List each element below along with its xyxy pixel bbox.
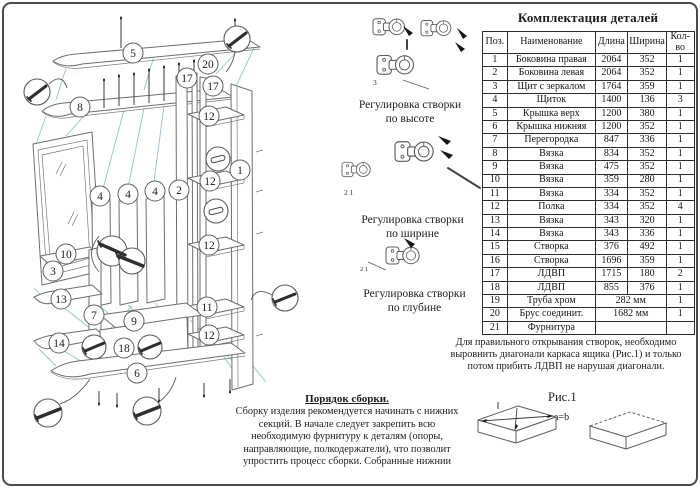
svg-text:14: 14: [53, 338, 65, 350]
hinge-callout-label: 3: [373, 78, 377, 87]
assembly-text: Сборку изделия рекомендуется начинать с …: [232, 406, 462, 469]
furniture-diagram: 58201717121212111212444103137914186: [4, 4, 354, 436]
svg-text:18: 18: [118, 343, 130, 355]
svg-text:5: 5: [130, 48, 136, 60]
callout-12: 12: [199, 235, 219, 255]
callout-4: 4: [90, 186, 110, 206]
hinge-icon: [421, 21, 451, 36]
svg-text:12: 12: [203, 240, 215, 252]
table-row: 19Труба хром282 мм1: [482, 295, 694, 308]
svg-text:10: 10: [60, 249, 72, 261]
table-row: 17ЛДВП17151802: [482, 268, 694, 281]
callout-8: 8: [70, 97, 90, 117]
fig1-block: Рис.1 a=b: [468, 388, 698, 466]
hinge-icon: [395, 142, 433, 162]
parts-table-body: 1Боковина правая206435212Боковина левая2…: [482, 54, 694, 335]
hinge-diagram-height: [345, 12, 475, 93]
parts-title: Комплектация деталей: [480, 10, 696, 26]
hinge-icon: [386, 247, 419, 264]
hinge-icon: [377, 56, 414, 75]
callout-5: 5: [123, 43, 143, 63]
callout-10: 10: [56, 244, 76, 264]
svg-text:1: 1: [237, 165, 243, 177]
callout-17: 17: [203, 76, 223, 96]
parts-table: Поз.НаименованиеДлинаШиринаКол-во 1Боков…: [482, 31, 695, 335]
svg-text:12: 12: [204, 176, 216, 188]
assembly-title: Порядок сборки.: [232, 393, 462, 405]
svg-text:7: 7: [91, 310, 97, 322]
callout-7: 7: [84, 305, 104, 325]
table-row: 12Полка3343524: [482, 201, 694, 214]
callout-12: 12: [199, 106, 219, 126]
svg-text:13: 13: [55, 294, 67, 306]
svg-text:17: 17: [181, 73, 193, 85]
callout-11: 11: [197, 297, 217, 317]
table-row: 9Вязка4753521: [482, 161, 694, 174]
table-row: 8Вязка8343521: [482, 147, 694, 160]
column-header: Кол-во: [666, 32, 694, 54]
table-row: 4Щиток14001363: [482, 94, 694, 107]
parts-list: Комплектация деталей Поз.НаименованиеДли…: [480, 10, 696, 335]
svg-text:6: 6: [134, 368, 140, 380]
hinge-diagram-depth: [352, 238, 477, 282]
adjustment-caption: Регулировка створки по глубине: [352, 287, 477, 316]
fig1-diagram: [468, 400, 698, 462]
table-row: 10Вязка3592801: [482, 174, 694, 187]
table-row: 3Щит с зеркалом17643591: [482, 80, 694, 93]
adjust-group-width: 2 1 Регулировка створки по ширине: [340, 128, 485, 242]
svg-text:8: 8: [77, 102, 83, 114]
hinge-callout-label: 2 1: [344, 188, 353, 197]
table-row: 16Створка16963591: [482, 254, 694, 267]
table-row: 6Крышка нижняя12003521: [482, 120, 694, 133]
table-row: 15Створка3764921: [482, 241, 694, 254]
svg-text:11: 11: [201, 302, 212, 314]
table-row: 21Фурнитура: [482, 321, 694, 334]
svg-text:4: 4: [125, 189, 131, 201]
table-row: 11Вязка3343521: [482, 187, 694, 200]
callout-20: 20: [198, 54, 218, 74]
table-row: 18ЛДВП8553761: [482, 281, 694, 294]
parts-table-header: Поз.НаименованиеДлинаШиринаКол-во: [482, 32, 694, 54]
table-row: 7Перегородка8473361: [482, 134, 694, 147]
hinge-icon: [373, 19, 405, 35]
adjust-group-depth: 2 1 Регулировка створки по глубине: [352, 238, 477, 316]
adjust-group-height: 3 Регулировка створки по высоте: [345, 12, 475, 127]
svg-text:17: 17: [207, 81, 219, 93]
column-header: Наименование: [508, 32, 595, 54]
svg-text:2: 2: [176, 185, 182, 197]
callout-3: 3: [43, 261, 63, 281]
note-text: Для правильного открывания створок, необ…: [437, 337, 695, 373]
adjustment-caption: Регулировка створки по высоте: [345, 98, 475, 127]
callout-4: 4: [145, 181, 165, 201]
svg-text:4: 4: [152, 186, 158, 198]
callout-14: 14: [49, 333, 69, 353]
right-section: [176, 73, 263, 390]
callout-6: 6: [127, 363, 147, 383]
hinge-icon: [342, 162, 370, 176]
box-with-diagonals: [478, 402, 556, 443]
table-row: 1Боковина правая20643521: [482, 54, 694, 67]
callout-13: 13: [51, 289, 71, 309]
box-with-panel: [590, 412, 666, 449]
callout-12: 12: [200, 171, 220, 191]
hinge-callout-label: 2 1: [360, 266, 368, 273]
svg-text:3: 3: [50, 266, 56, 278]
callout-4: 4: [118, 184, 138, 204]
assembly-block: Порядок сборки. Сборку изделия рекоменду…: [232, 393, 462, 469]
svg-text:12: 12: [203, 330, 215, 342]
callout-9: 9: [124, 311, 144, 331]
svg-text:12: 12: [203, 111, 215, 123]
callout-1: 1: [230, 160, 250, 180]
column-header: Длина: [595, 32, 628, 54]
svg-text:9: 9: [131, 316, 137, 328]
svg-text:20: 20: [202, 59, 214, 71]
callout-12: 12: [199, 325, 219, 345]
callout-17: 17: [177, 68, 197, 88]
table-row: 14Вязка3433361: [482, 228, 694, 241]
column-header: Поз.: [482, 32, 508, 54]
callout-2: 2: [169, 180, 189, 200]
table-row: 2Боковина левая20643521: [482, 67, 694, 80]
callout-18: 18: [114, 338, 134, 358]
instruction-sheet: 58201717121212111212444103137914186 3 Ре…: [0, 0, 700, 488]
table-row: 5Крышка верх12003801: [482, 107, 694, 120]
table-row: 20Брус соединит.1682 мм1: [482, 308, 694, 321]
table-row: 13Вязка3433201: [482, 214, 694, 227]
svg-text:4: 4: [97, 191, 103, 203]
furniture-diagram-svg: 58201717121212111212444103137914186: [4, 4, 354, 436]
column-header: Ширина: [628, 32, 667, 54]
hinge-diagram-width: [340, 128, 485, 208]
